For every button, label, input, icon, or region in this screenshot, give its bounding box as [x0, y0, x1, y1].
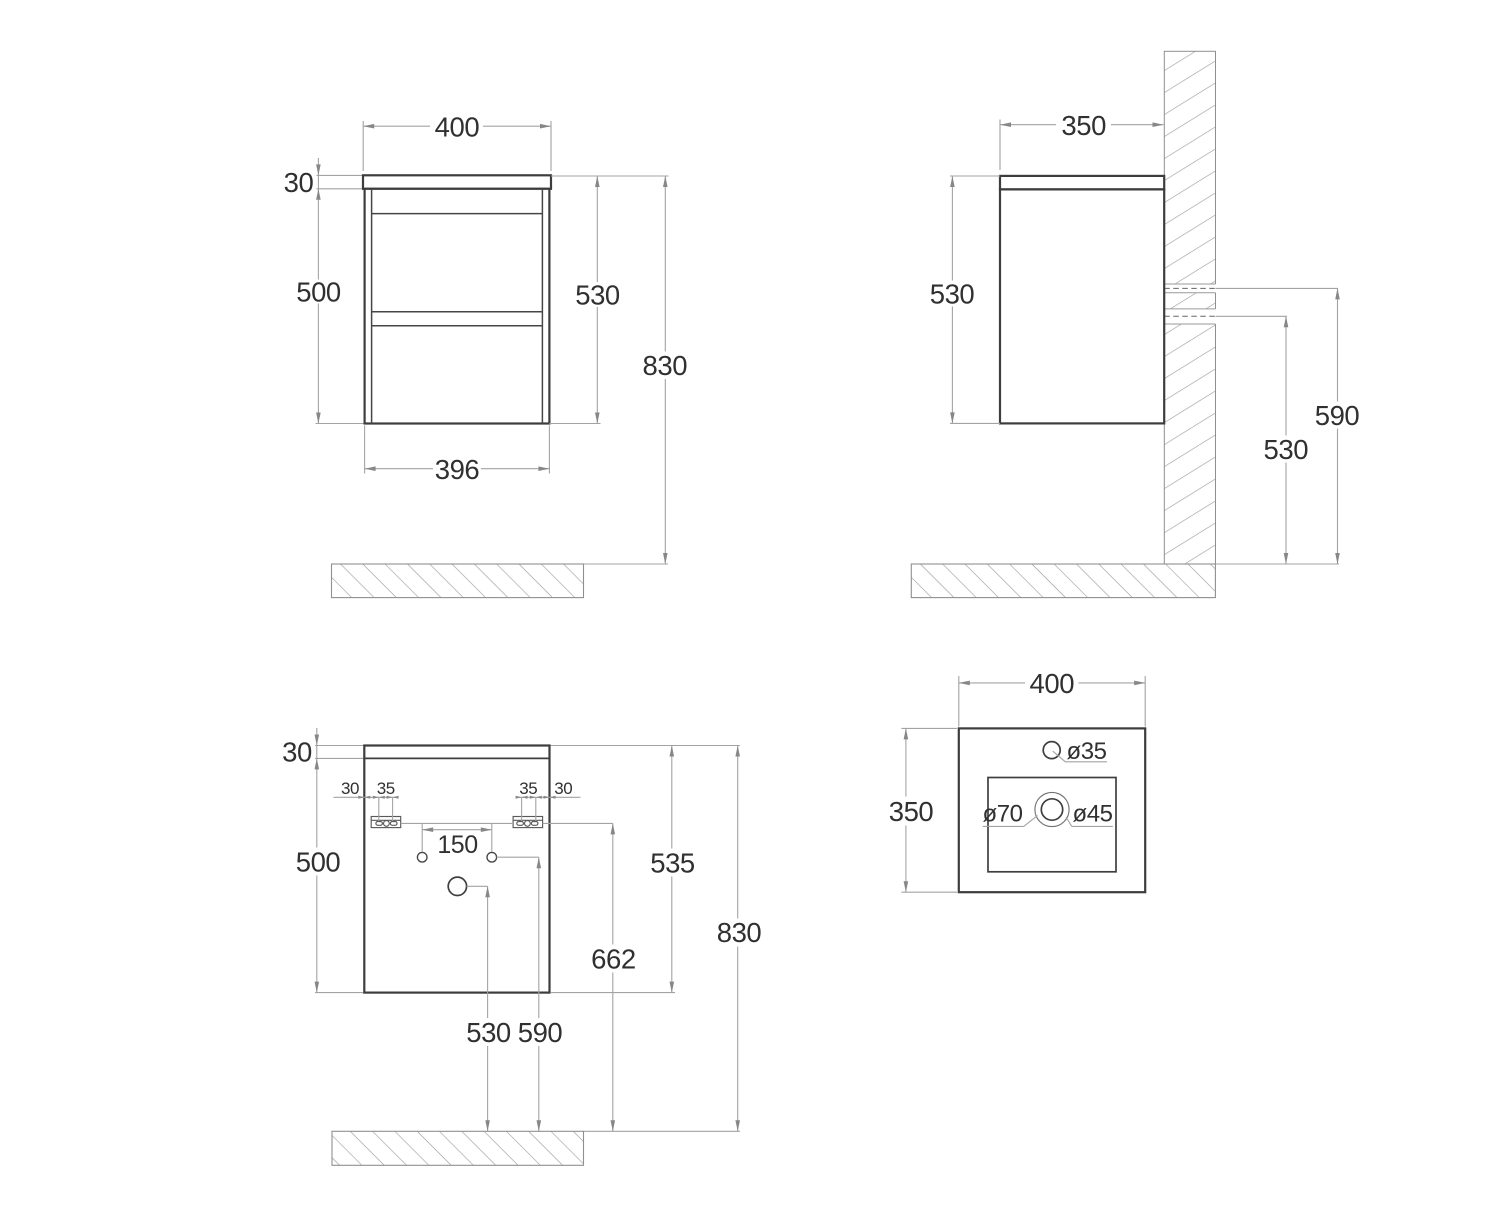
svg-text:590: 590 — [518, 1017, 563, 1048]
svg-text:35: 35 — [377, 779, 395, 798]
svg-text:500: 500 — [296, 277, 341, 308]
svg-text:400: 400 — [435, 111, 480, 142]
svg-text:830: 830 — [717, 917, 762, 948]
svg-text:530: 530 — [930, 279, 975, 310]
svg-text:535: 535 — [650, 848, 695, 879]
svg-text:590: 590 — [1315, 400, 1360, 431]
svg-text:ø45: ø45 — [1072, 801, 1112, 828]
svg-text:530: 530 — [1264, 434, 1309, 465]
svg-text:350: 350 — [889, 796, 934, 827]
svg-text:30: 30 — [341, 779, 359, 798]
svg-text:30: 30 — [282, 737, 312, 768]
svg-text:30: 30 — [554, 779, 572, 798]
svg-text:400: 400 — [1030, 668, 1075, 699]
svg-text:500: 500 — [296, 847, 341, 878]
svg-text:ø35: ø35 — [1066, 738, 1106, 765]
svg-text:350: 350 — [1061, 110, 1106, 141]
svg-text:396: 396 — [435, 454, 480, 485]
svg-text:150: 150 — [437, 831, 477, 859]
svg-text:662: 662 — [591, 944, 636, 975]
svg-text:35: 35 — [519, 779, 537, 798]
svg-text:830: 830 — [643, 350, 688, 381]
svg-text:30: 30 — [284, 167, 314, 198]
svg-text:ø70: ø70 — [982, 801, 1022, 828]
svg-text:530: 530 — [575, 280, 620, 311]
svg-text:530: 530 — [466, 1017, 511, 1048]
